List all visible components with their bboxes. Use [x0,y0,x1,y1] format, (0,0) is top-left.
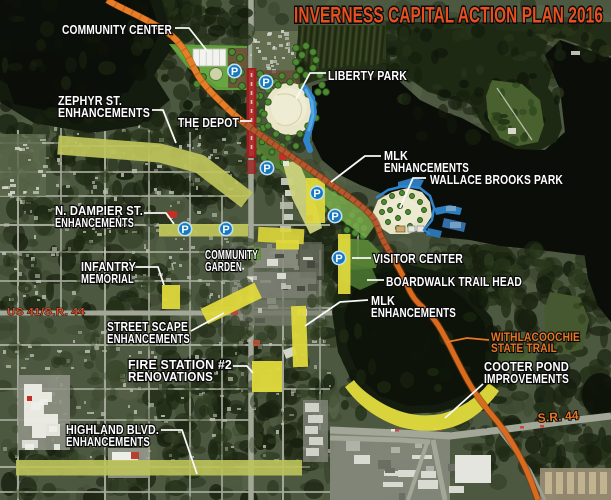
svg-text:BOARDWALK TRAIL HEAD: BOARDWALK TRAIL HEAD [386,274,522,289]
svg-text:INVERNESS CAPITAL ACTION PLAN: INVERNESS CAPITAL ACTION PLAN 2016 [294,3,603,28]
svg-text:P: P [263,163,270,175]
svg-text:THE DEPOT: THE DEPOT [178,115,239,130]
svg-text:ENHANCEMENTS: ENHANCEMENTS [66,434,150,449]
svg-text:IMPROVEMENTS: IMPROVEMENTS [484,371,569,386]
svg-text:ENHANCEMENTS: ENHANCEMENTS [107,331,190,346]
svg-text:LIBERTY PARK: LIBERTY PARK [328,68,407,83]
svg-text:STATE TRAIL: STATE TRAIL [491,343,557,355]
svg-text:RENOVATIONS: RENOVATIONS [128,369,213,384]
svg-text:VISITOR CENTER: VISITOR CENTER [373,251,463,266]
svg-text:ENHANCEMENTS: ENHANCEMENTS [55,215,134,230]
svg-text:P: P [231,66,238,78]
svg-text:P: P [262,77,269,89]
svg-text:ENHANCEMENTS: ENHANCEMENTS [371,305,456,320]
svg-text:P: P [222,224,229,236]
svg-text:ENHANCEMENTS: ENHANCEMENTS [58,105,150,120]
svg-text:GARDEN: GARDEN [205,259,242,274]
svg-text:COMMUNITY CENTER: COMMUNITY CENTER [62,22,172,37]
svg-text:US 41/S.R. 44: US 41/S.R. 44 [7,307,85,318]
svg-text:MEMORIAL: MEMORIAL [81,271,134,286]
svg-text:WALLACE BROOKS PARK: WALLACE BROOKS PARK [430,172,563,187]
svg-text:P: P [331,211,338,223]
svg-text:P: P [313,188,320,200]
svg-text:S.R. 44: S.R. 44 [537,408,579,425]
svg-text:P: P [181,224,188,236]
svg-text:P: P [335,253,342,265]
